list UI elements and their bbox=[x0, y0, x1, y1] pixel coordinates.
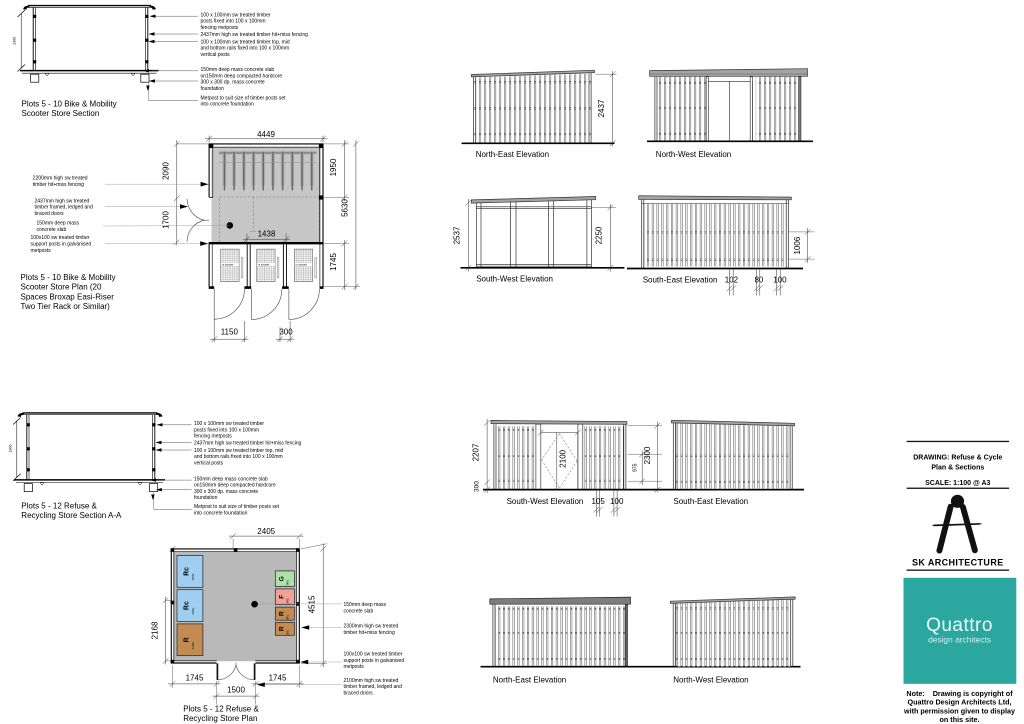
svg-text:102: 102 bbox=[725, 276, 739, 285]
svg-text:South-East Elevation: South-East Elevation bbox=[643, 276, 718, 285]
svg-text:100: 100 bbox=[773, 276, 787, 285]
svg-text:1438: 1438 bbox=[258, 230, 276, 239]
svg-text:South-East Elevation: South-East Elevation bbox=[673, 497, 748, 506]
svg-text:240L: 240L bbox=[286, 597, 290, 603]
svg-text:braced doors: braced doors bbox=[344, 691, 374, 697]
svg-text:Plots 5 - 12 Refuse &: Plots 5 - 12 Refuse & bbox=[21, 502, 97, 511]
svg-text:Quattro: Quattro bbox=[926, 615, 993, 636]
svg-text:2537: 2537 bbox=[453, 226, 462, 244]
svg-text:metposts: metposts bbox=[344, 664, 365, 670]
svg-text:2207: 2207 bbox=[471, 443, 480, 461]
svg-text:2405: 2405 bbox=[257, 527, 275, 536]
svg-text:braced doors: braced doors bbox=[35, 211, 65, 217]
svg-text:Quattro Design Architects Ltd,: Quattro Design Architects Ltd, bbox=[908, 698, 1012, 707]
svg-text:SK ARCHITECTURE: SK ARCHITECTURE bbox=[912, 557, 1004, 567]
svg-text:105: 105 bbox=[592, 497, 606, 506]
svg-text:Plan & Sections: Plan & Sections bbox=[931, 464, 984, 471]
svg-text:Spaces Broxap Easi-Riser: Spaces Broxap Easi-Riser bbox=[21, 292, 115, 301]
svg-text:design architects: design architects bbox=[928, 634, 991, 644]
svg-text:South-West Elevation: South-West Elevation bbox=[476, 275, 553, 284]
svg-text:fencing metposts: fencing metposts bbox=[194, 434, 232, 440]
svg-text:timber hit+miss fencing: timber hit+miss fencing bbox=[344, 630, 395, 636]
svg-text:concrete slab: concrete slab bbox=[37, 227, 67, 233]
svg-text:North-East Elevation: North-East Elevation bbox=[476, 150, 549, 159]
svg-text:1150: 1150 bbox=[221, 328, 239, 337]
svg-text:North-West Elevation: North-West Elevation bbox=[673, 676, 748, 685]
svg-text:5630: 5630 bbox=[341, 199, 350, 217]
svg-text:R: R bbox=[279, 626, 286, 631]
svg-text:support posts in galvanised: support posts in galvanised bbox=[344, 658, 405, 664]
svg-text:150mm deep mass: 150mm deep mass bbox=[344, 602, 387, 608]
svg-text:R: R bbox=[279, 611, 286, 616]
svg-text:Scooter Store Section: Scooter Store Section bbox=[22, 109, 100, 118]
svg-text:100 x 100mm sw treated timber: 100 x 100mm sw treated timber bbox=[194, 421, 264, 427]
svg-text:posts fixed into 100 x 100mm: posts fixed into 100 x 100mm bbox=[194, 427, 259, 433]
svg-text:Recycling Store Section A-A: Recycling Store Section A-A bbox=[21, 511, 122, 520]
svg-text:support posts in galvanised: support posts in galvanised bbox=[31, 242, 92, 248]
svg-text:timber hit+miss fencing: timber hit+miss fencing bbox=[33, 182, 84, 188]
svg-text:North-West Elevation: North-West Elevation bbox=[656, 150, 731, 159]
svg-text:R: R bbox=[184, 637, 191, 642]
svg-text:300: 300 bbox=[473, 481, 480, 492]
svg-text:Metpost to suit size of timber: Metpost to suit size of timber posts set bbox=[194, 504, 280, 510]
svg-text:1100L: 1100L bbox=[191, 573, 195, 581]
svg-text:on this site.: on this site. bbox=[940, 715, 980, 724]
svg-text:North-East Elevation: North-East Elevation bbox=[493, 676, 566, 685]
svg-text:Recycling Store Plan: Recycling Store Plan bbox=[183, 714, 257, 723]
svg-text:and bottom rails fixed into 10: and bottom rails fixed into 100 x 100mm bbox=[201, 46, 290, 52]
svg-text:2200mm high sw treated: 2200mm high sw treated bbox=[33, 176, 88, 182]
svg-text:300 x 300 dp. mass concrete: 300 x 300 dp. mass concrete bbox=[194, 489, 258, 495]
svg-text:100x100 sw treated timber: 100x100 sw treated timber bbox=[31, 235, 90, 241]
svg-text:180L: 180L bbox=[286, 614, 290, 620]
svg-text:m scooter: m scooter bbox=[258, 263, 270, 267]
svg-text:150mm deep mass concrete slab: 150mm deep mass concrete slab bbox=[201, 67, 275, 73]
svg-text:100: 100 bbox=[610, 497, 624, 506]
svg-text:4515: 4515 bbox=[308, 595, 317, 613]
svg-text:into concrete foundation: into concrete foundation bbox=[194, 511, 248, 517]
svg-text:South-West Elevation: South-West Elevation bbox=[507, 497, 584, 506]
svg-text:300 x 300 dp. mass concrete: 300 x 300 dp. mass concrete bbox=[201, 80, 265, 86]
svg-text:timber framed, ledged and: timber framed, ledged and bbox=[35, 205, 94, 211]
svg-text:100 x 100mm sw treated timber: 100 x 100mm sw treated timber bbox=[201, 12, 271, 18]
svg-text:Plots 5 - 10 Bike & Mobility: Plots 5 - 10 Bike & Mobility bbox=[22, 100, 117, 109]
svg-text:2437mm high sw treated timber: 2437mm high sw treated timber hit+miss f… bbox=[201, 32, 309, 38]
svg-text:1100L: 1100L bbox=[191, 607, 195, 615]
svg-text:150mm deep mass: 150mm deep mass bbox=[37, 221, 80, 227]
svg-text:2300: 2300 bbox=[643, 446, 652, 464]
svg-text:on150mm deep compacted hardcor: on150mm deep compacted hardcore bbox=[201, 73, 283, 79]
svg-text:2168: 2168 bbox=[150, 621, 159, 639]
svg-text:1700: 1700 bbox=[162, 211, 171, 229]
svg-text:2437: 2437 bbox=[597, 99, 606, 117]
svg-text:Rc: Rc bbox=[184, 567, 191, 576]
svg-text:1745: 1745 bbox=[186, 674, 204, 683]
svg-text:vertical posts: vertical posts bbox=[201, 52, 231, 58]
svg-text:1745: 1745 bbox=[269, 674, 287, 683]
svg-text:m scooter: m scooter bbox=[296, 263, 308, 267]
svg-text:2437mm high sw treated timber: 2437mm high sw treated timber hit+miss f… bbox=[194, 440, 302, 446]
svg-text:240L: 240L bbox=[286, 579, 290, 585]
svg-text:m scooter: m scooter bbox=[222, 263, 234, 267]
svg-text:vertical posts: vertical posts bbox=[194, 461, 224, 467]
svg-text:into concrete foundation: into concrete foundation bbox=[201, 102, 255, 108]
svg-text:2250: 2250 bbox=[595, 226, 604, 244]
svg-text:2100: 2100 bbox=[559, 449, 568, 467]
svg-text:975: 975 bbox=[632, 463, 638, 472]
svg-text:4449: 4449 bbox=[257, 130, 275, 139]
svg-text:2300: 2300 bbox=[13, 37, 17, 45]
svg-text:150mm deep mass concrete slab: 150mm deep mass concrete slab bbox=[194, 476, 268, 482]
svg-text:Plots 5 - 10 Bike & Mobility: Plots 5 - 10 Bike & Mobility bbox=[21, 273, 116, 282]
svg-text:2100mm high sw treated: 2100mm high sw treated bbox=[344, 678, 399, 684]
svg-text:1745: 1745 bbox=[329, 253, 338, 271]
svg-text:1950: 1950 bbox=[329, 158, 338, 176]
svg-text:foundation: foundation bbox=[201, 86, 225, 92]
svg-text:fencing metposts: fencing metposts bbox=[201, 25, 239, 31]
svg-text:timber framed, ledged and: timber framed, ledged and bbox=[344, 684, 403, 690]
svg-text:300: 300 bbox=[279, 328, 293, 337]
svg-text:180L: 180L bbox=[286, 629, 290, 635]
svg-text:Note: Drawing is copyright: Note: Drawing is copyright of bbox=[906, 689, 1013, 698]
svg-text:1100L: 1100L bbox=[191, 641, 195, 649]
svg-text:foundation: foundation bbox=[194, 495, 218, 501]
svg-text:metposts: metposts bbox=[31, 248, 52, 254]
svg-text:80: 80 bbox=[754, 276, 763, 285]
svg-text:SCALE: 1:100 @ A3: SCALE: 1:100 @ A3 bbox=[925, 480, 990, 487]
svg-text:1500: 1500 bbox=[227, 685, 245, 694]
svg-text:2090: 2090 bbox=[162, 162, 171, 180]
svg-text:Rc: Rc bbox=[184, 601, 191, 610]
svg-text:G: G bbox=[279, 576, 286, 581]
svg-text:100 x 100mm sw treated timber: 100 x 100mm sw treated timber top, mid bbox=[194, 448, 283, 454]
svg-text:2300mm high sw treated: 2300mm high sw treated bbox=[344, 624, 399, 630]
svg-text:1006: 1006 bbox=[793, 236, 802, 254]
svg-text:posts fixed into 100 x 100mm: posts fixed into 100 x 100mm bbox=[201, 19, 266, 25]
svg-text:Plots 5 - 12 Refuse &: Plots 5 - 12 Refuse & bbox=[183, 704, 259, 713]
svg-text:2437mm high sw treated: 2437mm high sw treated bbox=[35, 198, 90, 204]
svg-text:on150mm deep compacted hardcor: on150mm deep compacted hardcore bbox=[194, 483, 276, 489]
svg-text:and bottom rails fixed into 10: and bottom rails fixed into 100 x 100mm bbox=[194, 454, 283, 460]
svg-text:100 x 100mm sw treated timber: 100 x 100mm sw treated timber top, mid bbox=[201, 39, 290, 45]
svg-text:concrete slab: concrete slab bbox=[344, 609, 374, 615]
svg-text:Metpost to suit size of timber: Metpost to suit size of timber posts set bbox=[201, 95, 287, 101]
svg-text:2300: 2300 bbox=[8, 445, 12, 453]
svg-text:100x100 sw treated timber: 100x100 sw treated timber bbox=[344, 652, 403, 658]
svg-text:DRAWING: Refuse & Cycle: DRAWING: Refuse & Cycle bbox=[913, 455, 1002, 462]
svg-text:F: F bbox=[279, 595, 286, 599]
svg-text:Scooter Store Plan (20: Scooter Store Plan (20 bbox=[21, 283, 102, 292]
svg-text:Two Tier Rack or Similar): Two Tier Rack or Similar) bbox=[21, 302, 111, 311]
